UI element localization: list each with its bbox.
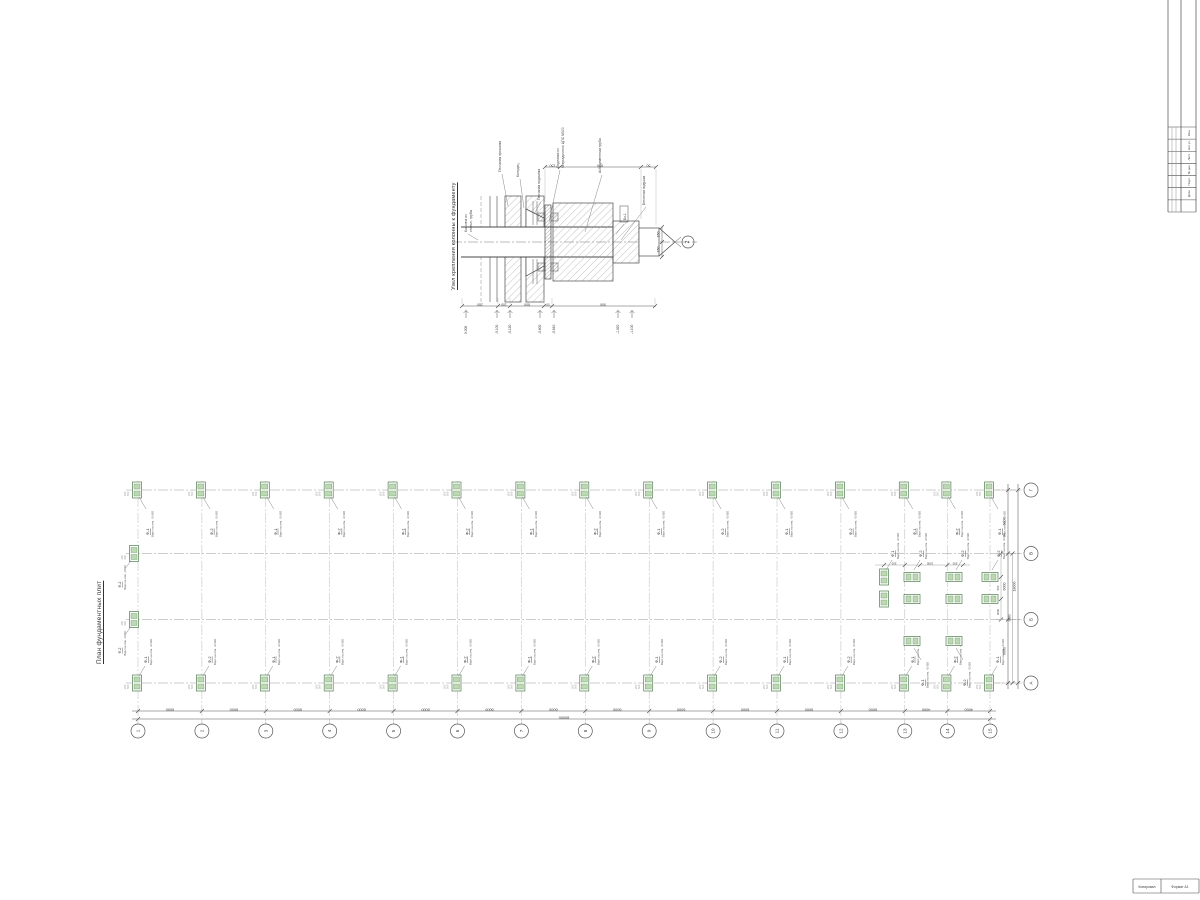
dim-label: 6000 [166,708,174,712]
foundation-cell [837,491,843,496]
micro-dim: 200 [443,684,447,689]
sleeve-block [613,221,639,263]
foundation-note: Верх на отм. -0.620 [853,511,857,537]
grid-bubble-label: 14 [945,728,950,734]
foundation-cell [390,684,396,689]
foundation-cell [943,684,949,689]
dim-label: 50 [546,303,550,307]
foundation-cell [454,684,460,689]
foundation-cell [645,484,651,489]
foundation-mark: Ф-2 [846,656,851,663]
micro-dim: 200 [315,491,319,496]
foundation-cell [198,677,204,682]
foundation-cell [262,677,268,682]
dim-label: 6000 [421,708,429,712]
foundation-note: Верх на отм. -0.620 [724,639,728,665]
dim-label: 6000 [1003,583,1007,591]
foundation-cell [955,574,960,580]
foundation-mark: Ф-2 [118,648,122,654]
micro-dim: 200 [932,491,936,496]
foundation-cell [131,555,137,560]
foundation-mark: Ф-2 [463,656,468,663]
foundation-note: Верх на отм. -0.620 [726,511,730,537]
foundation-mark: Ф-1 [528,528,533,535]
foundation-cell [581,484,587,489]
leader-line [778,666,784,676]
foundation-mark: Ф-2 [960,550,965,557]
micro-dim: 200 [379,684,383,689]
dim-label: 100 [501,303,507,307]
foundation-cell [948,596,953,602]
dim-label: 650 [597,164,603,168]
foundation-mark: Ф-2 [954,528,959,535]
foundation-mark: Ф-1 [145,528,150,535]
foundation-cell [837,677,843,682]
foundation-mark: Ф-2 [952,656,957,663]
foundation-cell [454,484,460,489]
foundation-cell [645,684,651,689]
foundation-note: Верх на отм. -0.620 [123,631,127,656]
foundation-cell [837,484,843,489]
micro-dim: 200 [315,684,319,689]
leader-line [991,666,997,676]
grid-bubble-label: 12 [838,728,843,734]
foundation-cell [881,600,887,605]
dim-label: 6000 [549,708,557,712]
foundation-block [553,203,613,281]
dim-label: 18000 [1013,582,1017,592]
grout-label: Подливка из [556,148,560,168]
micro-dim: 200 [826,491,830,496]
foundation-mark: Ф-1 [784,528,789,535]
dim-label: 500 [996,585,1000,590]
foundation-mark: Ф-2 [335,656,340,663]
dim-label: 6000 [230,708,238,712]
dim-label: 500 [952,562,957,566]
micro-dim: 200 [570,684,574,689]
grout-label: безусадочного ЦПС М300 [561,127,565,168]
micro-dim: 200 [932,684,936,689]
leader-line [586,497,593,509]
dim-label: 6000 [677,708,685,712]
foundation-cell [581,684,587,689]
dim-label: 600 [524,303,530,307]
tag-label: Бк-1 [623,213,627,220]
titleblock-label: Лист [1187,153,1191,160]
foundation-cell [517,491,523,496]
titleblock-label: Кол.уч. [1187,140,1191,150]
foundation-note: Верх на отм. -0.620 [662,511,666,537]
foundation-mark: Ф-1 [656,528,661,535]
foundation-cell [645,491,651,496]
foundation-mark: Ф-1 [782,656,787,663]
node-ref: 2 [685,240,691,243]
cad-linework: 2Колонна изстальн. трубыПесчаная просыпк… [0,0,1200,900]
foundation-mark: Ф-2 [207,656,212,663]
grid-bubble-label: 15 [988,728,993,734]
foundation-cell [326,491,332,496]
leader-line [992,560,998,570]
leader-line [139,497,146,509]
micro-dim: 200 [890,491,894,496]
foundation-mark: Ф-2 [720,528,725,535]
leader-line [267,666,273,676]
foundation-mark: Ф-1 [654,656,659,663]
dim-label: 6000 [1003,647,1007,655]
micro-dim: 200 [506,491,510,496]
foundation-mark: Ф-1 [143,656,148,663]
micro-dim: 200 [187,684,191,689]
elevation-label: 0.000 [464,326,468,334]
leader-line [522,497,529,509]
footer-copied-label: Копировал [1139,885,1156,889]
leader-line [522,666,528,676]
foundation-note: Верх на отм. -0.620 [960,511,964,537]
foundation-cell [581,491,587,496]
dim-label: 6000 [805,708,813,712]
grid-bubble-label: 1 [136,729,141,732]
footer-format-label: Формат А1 [1171,885,1188,889]
foundation-note: Верх на отм. -0.620 [406,511,410,537]
plan-title: План фундаментных плит [96,578,103,664]
foundation-note: Верх на отм. -0.620 [123,565,127,590]
titleblock-label: Подп. [1187,177,1191,185]
grid-bubble-label: Б [1029,618,1034,621]
elevation-label: -1.100 [630,324,634,334]
foundation-note: Верх на отм. -0.620 [534,511,538,537]
foundation-mark: Ф-1 [273,528,278,535]
foundation-cell [131,621,137,626]
column-label: Колонна из [464,214,468,232]
foundation-cell [326,484,332,489]
foundation-note: Верх на отм. -0.620 [660,639,664,665]
micro-dim: 200 [123,491,127,496]
foundation-cell [901,491,907,496]
foundation-note: Верх на отм. -0.620 [149,639,153,665]
leader-line [906,497,913,509]
foundation-mark: Ф-2 [465,528,470,535]
leader-line [331,666,337,676]
micro-dim: 200 [187,491,191,496]
foundation-note: Верх на отм. -0.620 [213,639,217,665]
elevation-label: -0.100 [495,324,499,334]
foundation-cell [134,484,140,489]
foundation-mark: Ф-2 [848,528,853,535]
foundation-cell [454,677,460,682]
leader-line [395,666,401,676]
foundation-note: Верх на отм. -0.620 [532,639,536,665]
foundation-cell [913,638,918,644]
sand-fill-label: Песчаная просыпка [498,141,502,172]
dim-label: 280 [477,303,483,307]
foundation-cell [906,574,911,580]
bolt-nut [538,213,545,221]
foundation-cell [986,484,992,489]
foundation-cell [881,593,887,598]
foundation-mark: Ф-1 [920,679,925,686]
foundation-note: Верх на отм. -0.620 [924,533,928,559]
well-label: Колодец [516,164,520,177]
foundation-cell [986,491,992,496]
foundation-cell [134,684,140,689]
foundation-note: Верх на отм. -0.620 [966,533,970,559]
foundation-cell [517,677,523,682]
foundation-cell [986,684,992,689]
foundation-cell [881,578,887,583]
foundation-cell [773,484,779,489]
micro-dim: 200 [251,684,255,689]
dim-label: 6000 [294,708,302,712]
micro-dim: 200 [762,684,766,689]
grid-bubble-label: 3 [263,729,268,732]
foundation-cell [709,677,715,682]
foundation-cell [943,484,949,489]
foundation-cell [709,684,715,689]
foundation-note: Верх на отм. -0.620 [1002,533,1006,559]
line [675,237,681,242]
foundation-cell [390,677,396,682]
foundation-note: Верх на отм. -0.620 [852,639,856,665]
dim-label: 6000 [613,708,621,712]
leader-line [778,497,785,509]
foundation-cell [709,484,715,489]
micro-dim: 200 [975,684,979,689]
foundation-cell [131,614,137,619]
leader-line [714,497,721,509]
foundation-cell [948,638,953,644]
foundation-mark: Ф-1 [912,528,917,535]
foundation-note: Верх на отм. -0.620 [596,639,600,665]
leader-line [459,497,466,509]
dim-label: 150 [550,164,556,168]
micro-dim: 200 [762,491,766,496]
foundation-mark: Ф-1 [526,656,531,663]
foundation-cell [986,677,992,682]
foundation-mark: Ф-2 [918,550,923,557]
foundation-cell [326,684,332,689]
dim-label: 6000 [1003,518,1007,526]
elevation-label: -0.150 [508,324,512,334]
titleblock-label: № док. [1187,164,1191,174]
dim-label: 4000 [922,708,930,712]
dim-label: 6000 [485,708,493,712]
foundation-mark: Ф-2 [962,679,967,686]
dim-label: 6000 [741,708,749,712]
drawing-sheet: 2Колонна изстальн. трубыПесчаная просыпк… [0,0,1200,900]
dim-label: 150 [657,232,661,238]
foundation-mark: Ф-2 [590,656,595,663]
foundation-note: Верх на отм. -0.620 [788,639,792,665]
foundation-cell [955,596,960,602]
foundation-cell [943,677,949,682]
foundation-cell [134,491,140,496]
elevation-label: -0.640 [552,324,556,334]
grid-bubble-label: 9 [647,729,652,732]
foundation-note: Верх на отм. -0.620 [278,511,282,537]
dim-label: 150 [657,247,661,253]
leader-line [139,666,145,676]
foundation-cell [581,677,587,682]
micro-dim: 200 [120,621,124,626]
foundation-cell [984,574,989,580]
foundation-note: Верх на отм. -0.620 [151,511,155,537]
micro-dim: 200 [379,491,383,496]
grid-bubble-label: В [1029,552,1034,555]
foundation-mark: Ф-1 [399,656,404,663]
foundation-note: Верх на отм. -0.620 [896,533,900,559]
leader-line [331,497,338,509]
foundation-cell [984,596,989,602]
foundation-mark: Ф-1 [890,550,895,557]
leader-line [650,497,657,509]
foundation-cell [198,491,204,496]
foundation-mark: Ф-2 [118,582,122,588]
foundation-cell [198,684,204,689]
micro-dim: 200 [570,491,574,496]
grid-bubble-label: 2 [199,729,204,732]
micro-dim: 200 [120,555,124,560]
leader-line [267,497,274,509]
leader-line [842,666,848,676]
foundation-cell [991,596,996,602]
foundation-cell [906,638,911,644]
foundation-cell [262,491,268,496]
foundation-cell [262,684,268,689]
grid-bubble-label: 4 [327,729,332,732]
foundation-note: Верх на отм. -0.620 [926,662,930,688]
grid-bubble-label: 7 [519,729,524,732]
grid-bubble-label: 10 [711,728,716,734]
grid-bubble-label: 8 [583,729,588,732]
leader-line [948,666,954,676]
foundation-cell [943,491,949,496]
foundation-cell [906,596,911,602]
micro-dim: 200 [634,684,638,689]
dim-label: 900 [600,303,606,307]
foundation-cell [198,484,204,489]
micro-dim: 200 [890,684,894,689]
foundation-cell [913,596,918,602]
grid-bubble-label: 13 [902,728,907,734]
foundation-note: Верх на отм. -0.620 [470,511,474,537]
leader-line [842,497,849,509]
dim-label: 2000 [996,608,1000,615]
foundation-cell [773,684,779,689]
foundation-mark: Ф-1 [995,656,1000,663]
foundation-cell [773,677,779,682]
elevation-label: -1.020 [616,324,620,334]
micro-dim: 200 [123,684,127,689]
foundation-mark: Ф-1 [401,528,406,535]
line [675,242,681,247]
foundation-mark: Ф-2 [209,528,214,535]
foundation-cell [948,574,953,580]
foundation-mark: Ф-1 [910,656,915,663]
grid-bubble-label: 5 [391,729,396,732]
foundation-note: Верх на отм. -0.620 [469,639,473,665]
foundation-note: Верх на отм. -0.620 [598,511,602,537]
foundation-cell [991,574,996,580]
bolt-nut [538,263,545,271]
foundation-note: Верх на отм. -0.620 [342,511,346,537]
micro-dim: 200 [826,684,830,689]
foundation-mark: Ф-1 [271,656,276,663]
leader-line [650,666,656,676]
grid-bubble-label: 11 [775,728,780,733]
foundation-mark: Ф-2 [337,528,342,535]
micro-dim: 200 [634,491,638,496]
dim-label: 6000 [357,708,365,712]
foundation-cell [134,677,140,682]
micro-dim: 200 [251,491,255,496]
leader-line [948,497,955,509]
foundation-cell [773,491,779,496]
leader-line [459,666,465,676]
dim-label: 9000 [1008,614,1012,621]
leader-line [714,666,720,676]
foundation-cell [390,484,396,489]
micro-dim: 200 [698,491,702,496]
leader-line [991,497,998,509]
foundation-note: Верх на отм. -0.620 [341,639,345,665]
dim-label: 6000 [869,708,877,712]
micro-dim: 200 [698,684,702,689]
micro-dim: 200 [443,491,447,496]
dim-label: 50 [647,164,651,168]
micro-dim: 200 [506,684,510,689]
elevation-label: -0.600 [538,324,542,334]
foundation-cell [901,484,907,489]
dim-label: 4000 [964,708,972,712]
dim-label: 80000 [559,716,570,720]
micro-dim: 200 [975,491,979,496]
grid-bubble-label: 6 [455,729,460,732]
foundation-note: Верх на отм. -0.620 [968,662,972,688]
leader-line [906,666,912,676]
foundation-cell [454,491,460,496]
foundation-cell [901,677,907,682]
foundation-cell [709,491,715,496]
leader-line [203,666,209,676]
foundation-cell [913,574,918,580]
foundation-cell [901,684,907,689]
foundation-note: Верх на отм. -0.620 [405,639,409,665]
foundation-cell [517,684,523,689]
titleblock-label: Изм. [1187,130,1191,137]
leader-line [586,666,592,676]
foundation-cell [390,491,396,496]
foundation-cell [955,638,960,644]
foundation-cell [131,548,137,553]
sand-bed-label: Песчаная подсыпка [537,169,541,200]
detail-title: Узел крепления колонны к фундаменту [451,188,457,290]
foundation-cell [326,677,332,682]
foundation-note: Верх на отм. -0.620 [277,639,281,665]
dim-label: 1000 [926,562,933,566]
foundation-note: Верх на отм. -0.620 [917,511,921,537]
titleblock-label: Дата [1187,190,1191,197]
foundation-note: Верх на отм. -0.620 [790,511,794,537]
foundation-cell [517,484,523,489]
leader-line [395,497,402,509]
leader-line [203,497,210,509]
concrete-pad-label: Бетонная подушка [642,176,646,205]
foundation-cell [837,684,843,689]
foundation-mark: Ф-2 [592,528,597,535]
foundation-note: Верх на отм. -0.620 [214,511,218,537]
foundation-cell [645,677,651,682]
foundation-cell [262,484,268,489]
